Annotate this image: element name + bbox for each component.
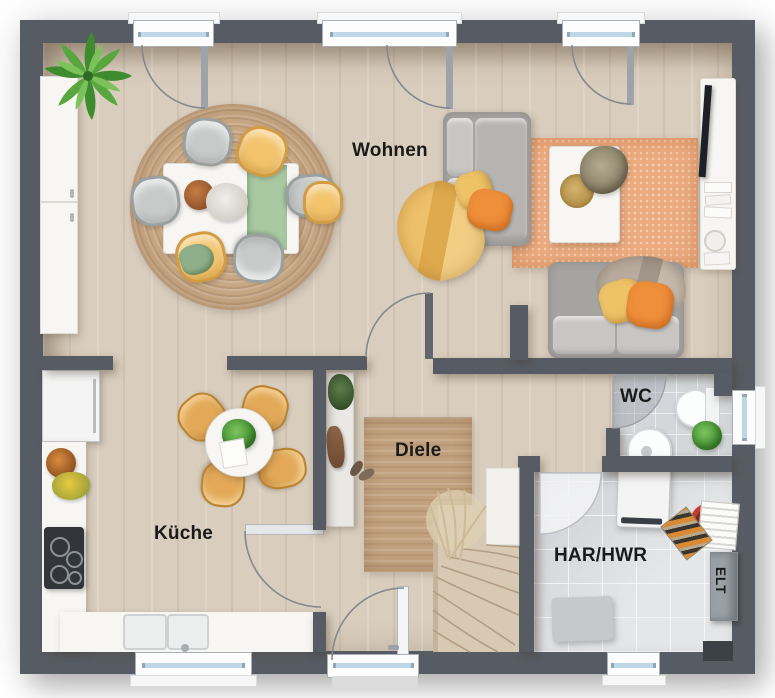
interior-wall <box>313 612 326 652</box>
wc-window <box>732 390 757 445</box>
fridge <box>42 370 100 442</box>
sink-basin <box>123 614 167 650</box>
washing-machine <box>616 462 671 529</box>
entrance-door-leaf <box>397 586 409 664</box>
sofa-back-cushion <box>447 118 473 176</box>
window-sill <box>602 675 666 686</box>
washer-panel <box>621 517 662 524</box>
dining-stool <box>303 181 343 224</box>
room-label-utility: HAR/HWR <box>554 545 647 567</box>
books <box>704 251 731 265</box>
window <box>562 20 640 47</box>
utility-window <box>607 652 660 677</box>
faucet <box>181 644 189 652</box>
interior-wall <box>602 456 732 472</box>
candle <box>704 230 726 252</box>
books <box>705 194 732 206</box>
door-handle <box>388 645 399 650</box>
room-label-hallway: Diele <box>395 440 441 462</box>
interior-wall <box>606 428 620 458</box>
room-label-electrical: ELT <box>713 567 728 607</box>
window <box>133 20 214 47</box>
interior-wall <box>43 356 113 370</box>
interior-wall <box>518 472 534 652</box>
burner <box>68 571 82 585</box>
terrace-door-leaf <box>446 45 453 109</box>
terrace-door-leaf <box>201 45 208 109</box>
window <box>322 20 457 47</box>
sofa-seat-cushion <box>553 316 615 354</box>
floor-plan: Wohnen Küche Diele WC HAR/HWR ELT <box>0 0 775 698</box>
burner <box>66 551 83 568</box>
cabinet-handle <box>70 213 74 222</box>
window-sill <box>130 675 257 687</box>
interior-wall <box>433 358 732 374</box>
books <box>704 206 733 218</box>
dining-chair <box>231 232 285 284</box>
interior-door-leaf <box>425 293 433 359</box>
burner <box>50 565 69 584</box>
pillow <box>624 279 676 331</box>
hall-plant <box>328 374 354 410</box>
books <box>704 182 732 193</box>
interior-wall <box>518 456 540 472</box>
fridge-handle <box>93 379 96 433</box>
interior-wall <box>313 368 326 530</box>
cabinet-handle <box>70 189 74 198</box>
interior-wall <box>227 356 367 370</box>
wall-block <box>714 373 732 396</box>
entrance-step <box>332 676 418 689</box>
room-label-kitchen: Küche <box>154 523 213 545</box>
wall-pier <box>510 305 528 360</box>
terrace-door-leaf <box>627 45 634 105</box>
cooktop <box>44 527 84 589</box>
entrance-door <box>327 654 419 678</box>
notepad <box>219 438 248 469</box>
palm-plant <box>40 26 136 126</box>
wc-plant <box>692 421 722 450</box>
decor-flowers <box>206 183 248 221</box>
freezer-box <box>551 596 613 642</box>
room-label-living: Wohnen <box>352 140 428 162</box>
kitchen-window <box>135 652 252 677</box>
window-sill <box>755 386 766 449</box>
duct-block <box>703 641 733 661</box>
cabinet-divider <box>41 201 77 203</box>
room-label-wc: WC <box>620 386 652 408</box>
